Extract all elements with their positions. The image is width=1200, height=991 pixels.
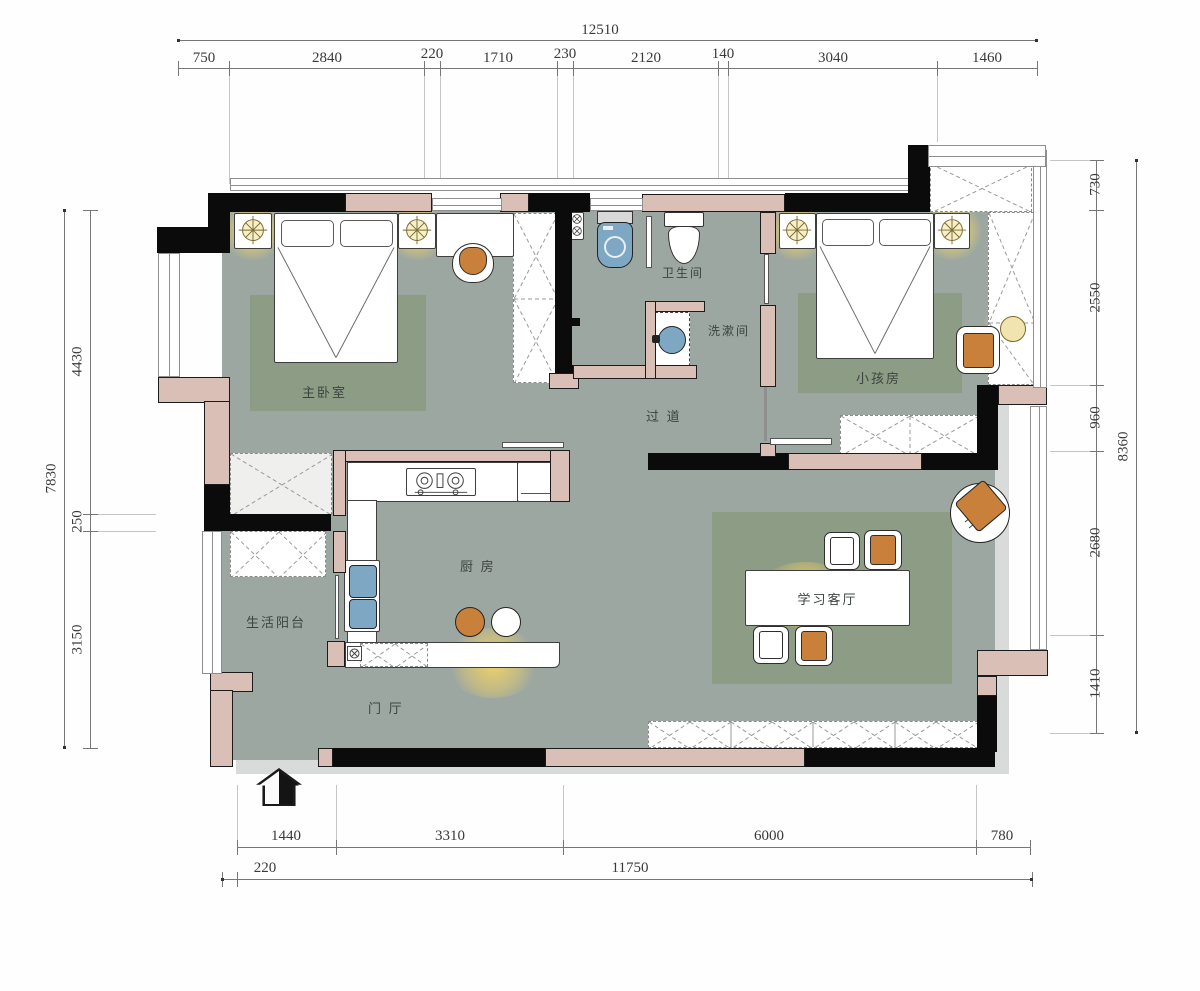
dim-seg: 3310 (415, 828, 485, 845)
dim-line (90, 210, 91, 748)
dim-seg: 2550 (1088, 263, 1105, 333)
dim-seg: 1710 (463, 50, 533, 67)
wall-infill (333, 531, 346, 573)
wall (977, 385, 998, 469)
dim-seg: 220 (397, 46, 467, 63)
chair-seat (459, 247, 487, 275)
outlet-icon (347, 646, 362, 661)
cabinet-bay (930, 163, 1032, 212)
sink-round-icon (658, 326, 686, 354)
exterior-sill (230, 178, 912, 191)
dim-seg: 730 (1088, 150, 1105, 220)
bar-stool-orange (455, 607, 485, 637)
wall-infill (642, 194, 785, 212)
room-label-wash: 洗漱间 (708, 322, 750, 339)
door-leaf-bath (646, 216, 652, 268)
dim-line (178, 40, 1037, 41)
dim-seg: 230 (530, 46, 600, 63)
window (1030, 406, 1047, 650)
bay-window (928, 145, 1046, 167)
wall (157, 227, 230, 253)
wall (332, 748, 545, 767)
extension-line (229, 76, 230, 184)
wall-infill (500, 193, 529, 212)
wall-infill (158, 377, 230, 403)
room-label-entry: 门 厅 (368, 698, 404, 717)
wall-infill (210, 690, 233, 767)
dim-line (64, 210, 65, 748)
room-label-corridor: 过 道 (646, 406, 682, 425)
dim-seg: 6000 (734, 828, 804, 845)
wall-infill (573, 365, 697, 379)
wall-infill (760, 305, 776, 387)
wall-infill (550, 450, 570, 502)
dim-line (237, 847, 1030, 848)
door-leaf-kids (770, 438, 832, 445)
extension-line (937, 76, 938, 142)
room-label-study: 学习客厅 (797, 589, 857, 608)
extension-line (718, 76, 719, 184)
wall (555, 193, 572, 385)
dim-line (1136, 160, 1137, 733)
window (158, 253, 180, 377)
wall-infill (345, 193, 432, 212)
cabinet-bar (360, 643, 428, 667)
washing-machine-icon (597, 222, 633, 268)
chair-seat (963, 333, 994, 368)
window (202, 531, 222, 674)
dim-seg: 3150 (70, 605, 87, 675)
dim-seg: 2680 (1088, 508, 1105, 578)
dim-seg: 1460 (952, 50, 1022, 67)
wall-infill (204, 401, 230, 485)
dim-total-left: 7830 (44, 444, 61, 514)
door-leaf-wash (764, 254, 769, 304)
door-leaf-master (502, 442, 564, 448)
dim-seg: 11750 (595, 860, 665, 877)
extension-line (728, 76, 729, 184)
pillow (879, 219, 931, 246)
wall-infill (327, 641, 345, 667)
cabinet-balcony-upper (230, 453, 332, 515)
wall-infill (210, 672, 253, 692)
nightstand (234, 213, 272, 249)
chair-seat (759, 631, 783, 659)
dim-line (222, 879, 1032, 880)
dim-seg: 2840 (292, 50, 362, 67)
pillow (281, 220, 334, 247)
chair-seat (801, 631, 827, 661)
cabinet-balcony-lower (230, 531, 326, 577)
window (432, 198, 502, 211)
room-label-kids: 小孩房 (856, 368, 901, 387)
window (1033, 150, 1047, 388)
window (590, 198, 643, 211)
wardrobe-kids (840, 415, 978, 455)
dim-seg: 140 (688, 46, 758, 63)
toilet-tank (664, 212, 704, 227)
room-label-kitchen: 厨 房 (460, 556, 496, 575)
nightstand (398, 213, 436, 249)
sink-basin-lower (349, 599, 377, 629)
faucet (652, 335, 660, 343)
extension-line (557, 76, 558, 184)
nightstand (934, 213, 970, 249)
wall-infill (977, 676, 997, 696)
wall (785, 193, 913, 212)
dim-total-top: 12510 (565, 22, 635, 39)
dim-seg: 1440 (251, 828, 321, 845)
desk-lamp (1000, 316, 1026, 342)
chair-seat (830, 537, 854, 565)
room-label-bath: 卫生间 (662, 264, 704, 281)
extension-line (440, 76, 441, 184)
dim-total-right: 8360 (1116, 412, 1133, 482)
dim-seg: 2120 (611, 50, 681, 67)
chair-seat (870, 535, 896, 565)
dim-seg: 4430 (70, 327, 87, 397)
bar-stool-white (491, 607, 521, 637)
dim-seg: 250 (70, 487, 87, 557)
dim-seg: 1410 (1088, 649, 1105, 719)
nightstand (779, 213, 816, 249)
door-stop (572, 318, 580, 326)
dim-seg: 750 (169, 50, 239, 67)
wall-infill (333, 450, 346, 516)
wall (803, 748, 995, 767)
stove-icon (406, 468, 476, 496)
dim-seg: 220 (230, 860, 300, 877)
wall-infill (788, 453, 922, 470)
wall (908, 145, 930, 212)
study-table: 学习客厅 (745, 570, 910, 626)
room-label-master: 主卧室 (302, 382, 347, 401)
pillow (822, 219, 874, 246)
room-label-balcony: 生活阳台 (246, 612, 306, 631)
extension-line (573, 76, 574, 184)
entrance-arrow-fill (259, 771, 299, 804)
wall-infill (345, 450, 557, 462)
wall-infill (760, 212, 776, 254)
wall-infill (545, 748, 805, 767)
floor-plan-canvas: 学习客厅 主卧室 卫生间 洗漱间 小孩房 过 道 厨 房 生活阳台 门 厅 12… (0, 0, 1200, 991)
extension-line (424, 76, 425, 184)
wall (977, 694, 997, 752)
wall-infill (977, 650, 1048, 676)
door-leaf-balcony (335, 575, 339, 639)
pillow (340, 220, 393, 247)
dim-seg: 780 (967, 828, 1037, 845)
sink-basin-upper (349, 565, 377, 598)
cabinet-tv-row (648, 721, 978, 748)
dim-line (178, 68, 1037, 69)
partition-line (764, 387, 767, 441)
wall-infill (760, 443, 776, 457)
dim-seg: 960 (1088, 383, 1105, 453)
wardrobe-master (513, 213, 557, 383)
wall-infill (318, 748, 333, 767)
outlet-panel (570, 212, 584, 240)
wall (205, 514, 331, 531)
wall-infill (998, 385, 1047, 405)
dim-seg: 3040 (798, 50, 868, 67)
